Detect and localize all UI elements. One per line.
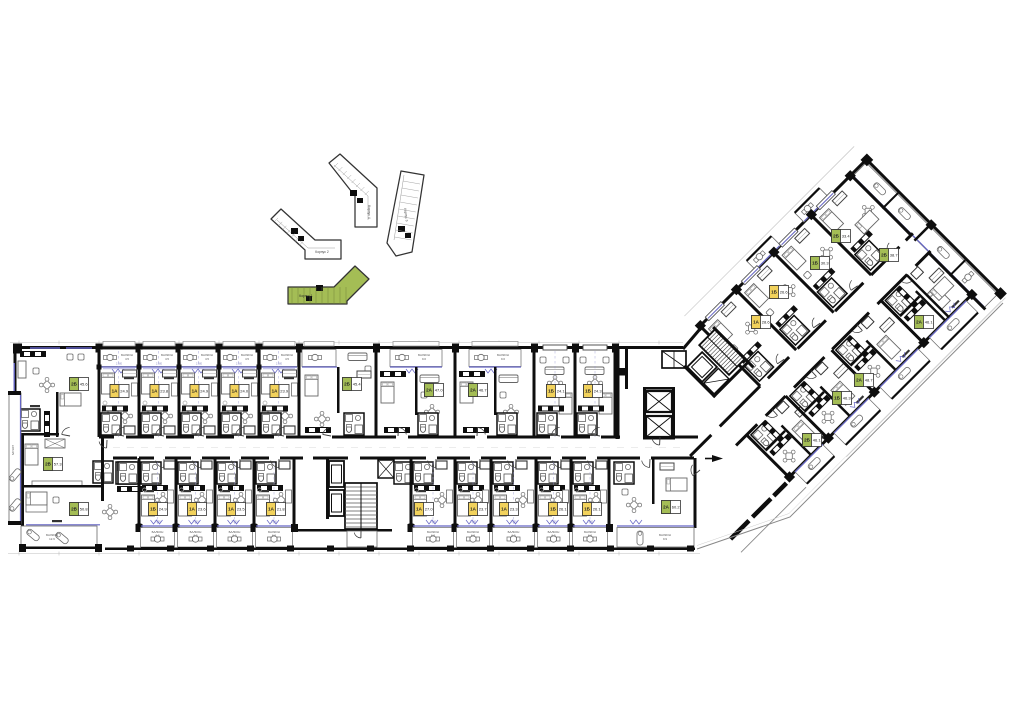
- svg-text:1Б: 1Б: [150, 507, 157, 512]
- svg-text:1А: 1А: [501, 507, 508, 512]
- svg-text:46.3: 46.3: [843, 396, 852, 401]
- svg-text:1А: 1А: [232, 389, 239, 394]
- svg-text:6.0: 6.0: [272, 534, 276, 538]
- svg-text:2А: 2А: [663, 505, 670, 510]
- svg-text:БАЛКОН: БАЛКОН: [12, 445, 15, 455]
- svg-text:23.8: 23.8: [160, 389, 169, 394]
- svg-text:12.6: 12.6: [49, 537, 55, 541]
- svg-text:50.8: 50.8: [80, 507, 89, 512]
- svg-text:26.6: 26.6: [780, 290, 789, 295]
- svg-text:1А: 1А: [268, 507, 275, 512]
- svg-text:Корпус 2: Корпус 2: [315, 250, 329, 254]
- svg-text:1А: 1А: [189, 507, 196, 512]
- svg-text:4.5: 4.5: [205, 357, 209, 361]
- svg-text:Корпус 1: Корпус 1: [299, 294, 313, 298]
- svg-text:6.0: 6.0: [193, 534, 197, 538]
- svg-text:1Б: 1Б: [834, 396, 841, 401]
- svg-text:2.600: 2.600: [236, 363, 243, 366]
- svg-text:23.5: 23.5: [237, 507, 246, 512]
- svg-text:1А: 1А: [192, 389, 199, 394]
- svg-text:4.5: 4.5: [245, 357, 249, 361]
- svg-text:1А: 1А: [112, 389, 119, 394]
- svg-text:24.0: 24.0: [240, 389, 249, 394]
- svg-text:23.6: 23.6: [198, 507, 207, 512]
- svg-text:2В: 2В: [45, 462, 52, 467]
- svg-text:45.6: 45.6: [80, 382, 89, 387]
- svg-text:1Б: 1Б: [548, 389, 555, 394]
- svg-text:2А: 2А: [426, 388, 433, 393]
- svg-text:1Б: 1Б: [550, 507, 557, 512]
- svg-text:23.9: 23.9: [280, 389, 289, 394]
- svg-text:9.6: 9.6: [422, 357, 426, 361]
- svg-text:1А: 1А: [272, 389, 279, 394]
- svg-text:1Б: 1Б: [584, 507, 591, 512]
- svg-text:1А: 1А: [416, 507, 423, 512]
- svg-text:2Б: 2Б: [71, 382, 78, 387]
- svg-text:30.3: 30.3: [821, 261, 830, 266]
- svg-text:33.4: 33.4: [842, 234, 851, 239]
- svg-text:4.5: 4.5: [125, 357, 129, 361]
- svg-text:24.3: 24.3: [594, 389, 603, 394]
- svg-text:2В: 2В: [71, 507, 78, 512]
- svg-text:24.9: 24.9: [200, 389, 209, 394]
- svg-text:2А: 2А: [856, 378, 863, 383]
- svg-text:48.7: 48.7: [865, 378, 874, 383]
- svg-text:46.7: 46.7: [479, 388, 488, 393]
- svg-text:2А: 2А: [916, 320, 923, 325]
- svg-text:28.6: 28.6: [762, 320, 771, 325]
- svg-text:60.2: 60.2: [672, 505, 681, 510]
- svg-text:21.8: 21.8: [277, 507, 286, 512]
- svg-text:57.3: 57.3: [54, 462, 63, 467]
- svg-text:2.600: 2.600: [116, 363, 123, 366]
- svg-text:1Б: 1Б: [812, 261, 819, 266]
- svg-text:2Б: 2Б: [344, 382, 351, 387]
- svg-text:2.600: 2.600: [276, 363, 283, 366]
- svg-text:6.0: 6.0: [232, 534, 236, 538]
- svg-text:6.0: 6.0: [471, 534, 475, 538]
- svg-text:45.4: 45.4: [353, 382, 362, 387]
- svg-text:46.1: 46.1: [925, 320, 934, 325]
- svg-text:9.9: 9.9: [663, 537, 667, 541]
- svg-text:1Б: 1Б: [771, 290, 778, 295]
- svg-text:26.1: 26.1: [593, 507, 602, 512]
- svg-text:47.0: 47.0: [435, 388, 444, 393]
- svg-text:24.9: 24.9: [120, 389, 129, 394]
- svg-text:Корпус 4: Корпус 4: [367, 205, 371, 219]
- svg-text:6.0: 6.0: [588, 534, 592, 538]
- svg-text:9.6: 9.6: [501, 357, 505, 361]
- svg-text:4.5: 4.5: [165, 357, 169, 361]
- svg-text:1А: 1А: [228, 507, 235, 512]
- svg-text:6.0: 6.0: [551, 534, 555, 538]
- svg-text:2Б: 2Б: [804, 438, 811, 443]
- svg-text:2Б: 2Б: [881, 253, 888, 258]
- svg-text:1А: 1А: [470, 507, 477, 512]
- svg-text:6.0: 6.0: [431, 534, 435, 538]
- svg-text:1А: 1А: [753, 320, 760, 325]
- svg-text:2Б: 2Б: [833, 234, 840, 239]
- svg-text:23.7: 23.7: [479, 507, 488, 512]
- svg-text:23.3: 23.3: [510, 507, 519, 512]
- svg-text:24.9: 24.9: [159, 507, 168, 512]
- svg-text:6.0: 6.0: [155, 534, 159, 538]
- svg-text:4.5: 4.5: [285, 357, 289, 361]
- svg-text:38.7: 38.7: [890, 253, 899, 258]
- svg-text:1А: 1А: [152, 389, 159, 394]
- svg-text:46.1: 46.1: [813, 438, 822, 443]
- svg-text:6.0: 6.0: [511, 534, 515, 538]
- svg-text:1Б: 1Б: [585, 389, 592, 394]
- svg-text:27.0: 27.0: [425, 507, 434, 512]
- svg-text:24.1: 24.1: [557, 389, 566, 394]
- svg-text:2.600: 2.600: [196, 363, 203, 366]
- svg-text:2.600: 2.600: [156, 363, 163, 366]
- svg-text:26.1: 26.1: [559, 507, 568, 512]
- svg-text:2А: 2А: [470, 388, 477, 393]
